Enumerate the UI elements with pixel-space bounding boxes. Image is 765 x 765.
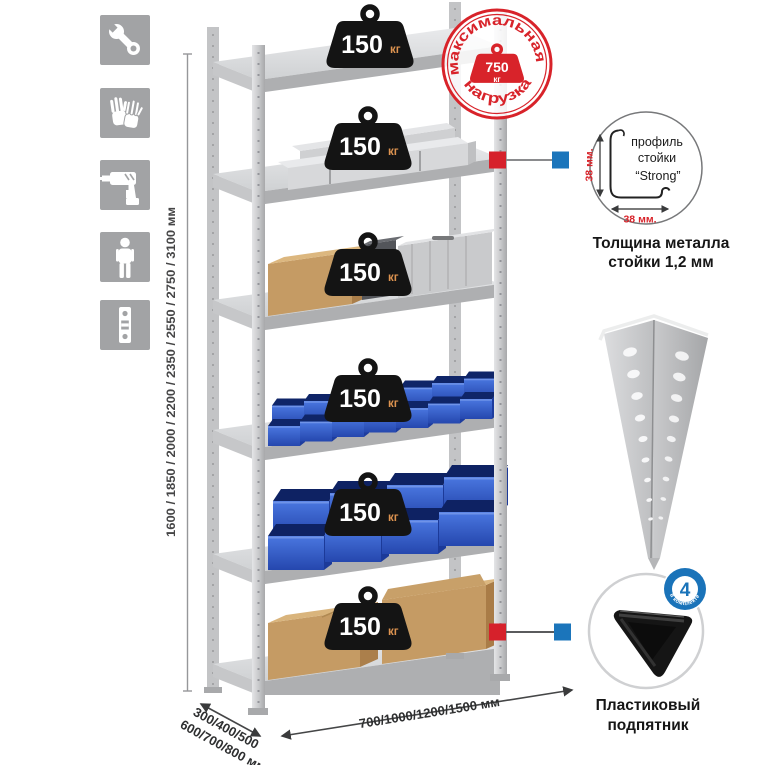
plastic-foot-image: 4 в комплекте Пластиковый подпятник <box>589 567 708 735</box>
callout-marker-red <box>489 624 506 641</box>
quantity-badge: 4 в комплекте <box>663 567 708 612</box>
badge-count: 4 <box>680 580 691 601</box>
svg-text:кг: кг <box>388 626 399 638</box>
rack-post-back-left <box>207 27 219 690</box>
profile-dim-vertical: 38 мм. <box>584 148 596 181</box>
svg-text:кг: кг <box>493 75 501 84</box>
rack-foot-back-right <box>446 653 464 659</box>
foot-caption-line2: подпятник <box>607 717 688 734</box>
svg-text:кг: кг <box>388 398 399 410</box>
svg-text:кг: кг <box>390 44 401 56</box>
svg-text:750: 750 <box>485 59 509 75</box>
svg-text:150: 150 <box>339 499 381 527</box>
product-infographic: 1600 / 1850 / 2000 / 2200 / 2350 / 2550 … <box>0 0 765 765</box>
svg-text:кг: кг <box>388 146 399 158</box>
callout-marker-blue <box>552 152 569 169</box>
drill-icon <box>98 160 150 210</box>
svg-text:150: 150 <box>339 259 381 287</box>
callout-marker-blue <box>554 624 571 641</box>
svg-text:150: 150 <box>339 133 381 161</box>
svg-text:кг: кг <box>388 272 399 284</box>
wrench-icon <box>100 15 150 65</box>
foot-caption-line1: Пластиковый <box>596 697 701 714</box>
profile-dim-horizontal: 38 мм. <box>623 214 656 226</box>
profile-caption-line1: Толщина металла <box>593 235 730 252</box>
profile-label-line1: профиль <box>631 135 683 149</box>
infographic-canvas: 1600 / 1850 / 2000 / 2200 / 2350 / 2550 … <box>0 0 765 765</box>
svg-text:150: 150 <box>341 31 383 59</box>
svg-text:150: 150 <box>339 613 381 641</box>
level-icon <box>100 300 150 350</box>
profile-caption-line2: стойки 1,2 мм <box>608 254 713 271</box>
height-dimension-label: 1600 / 1850 / 2000 / 2200 / 2350 / 2550 … <box>164 207 178 537</box>
callout-marker-red <box>489 152 506 169</box>
svg-text:кг: кг <box>388 512 399 524</box>
person-icon <box>100 232 150 282</box>
svg-text:150: 150 <box>339 385 381 413</box>
profile-label-line3: “Strong” <box>635 169 680 183</box>
gloves-icon <box>100 88 150 138</box>
rack-foot-back-left <box>204 687 222 693</box>
profile-label-line2: стойки <box>638 151 676 165</box>
